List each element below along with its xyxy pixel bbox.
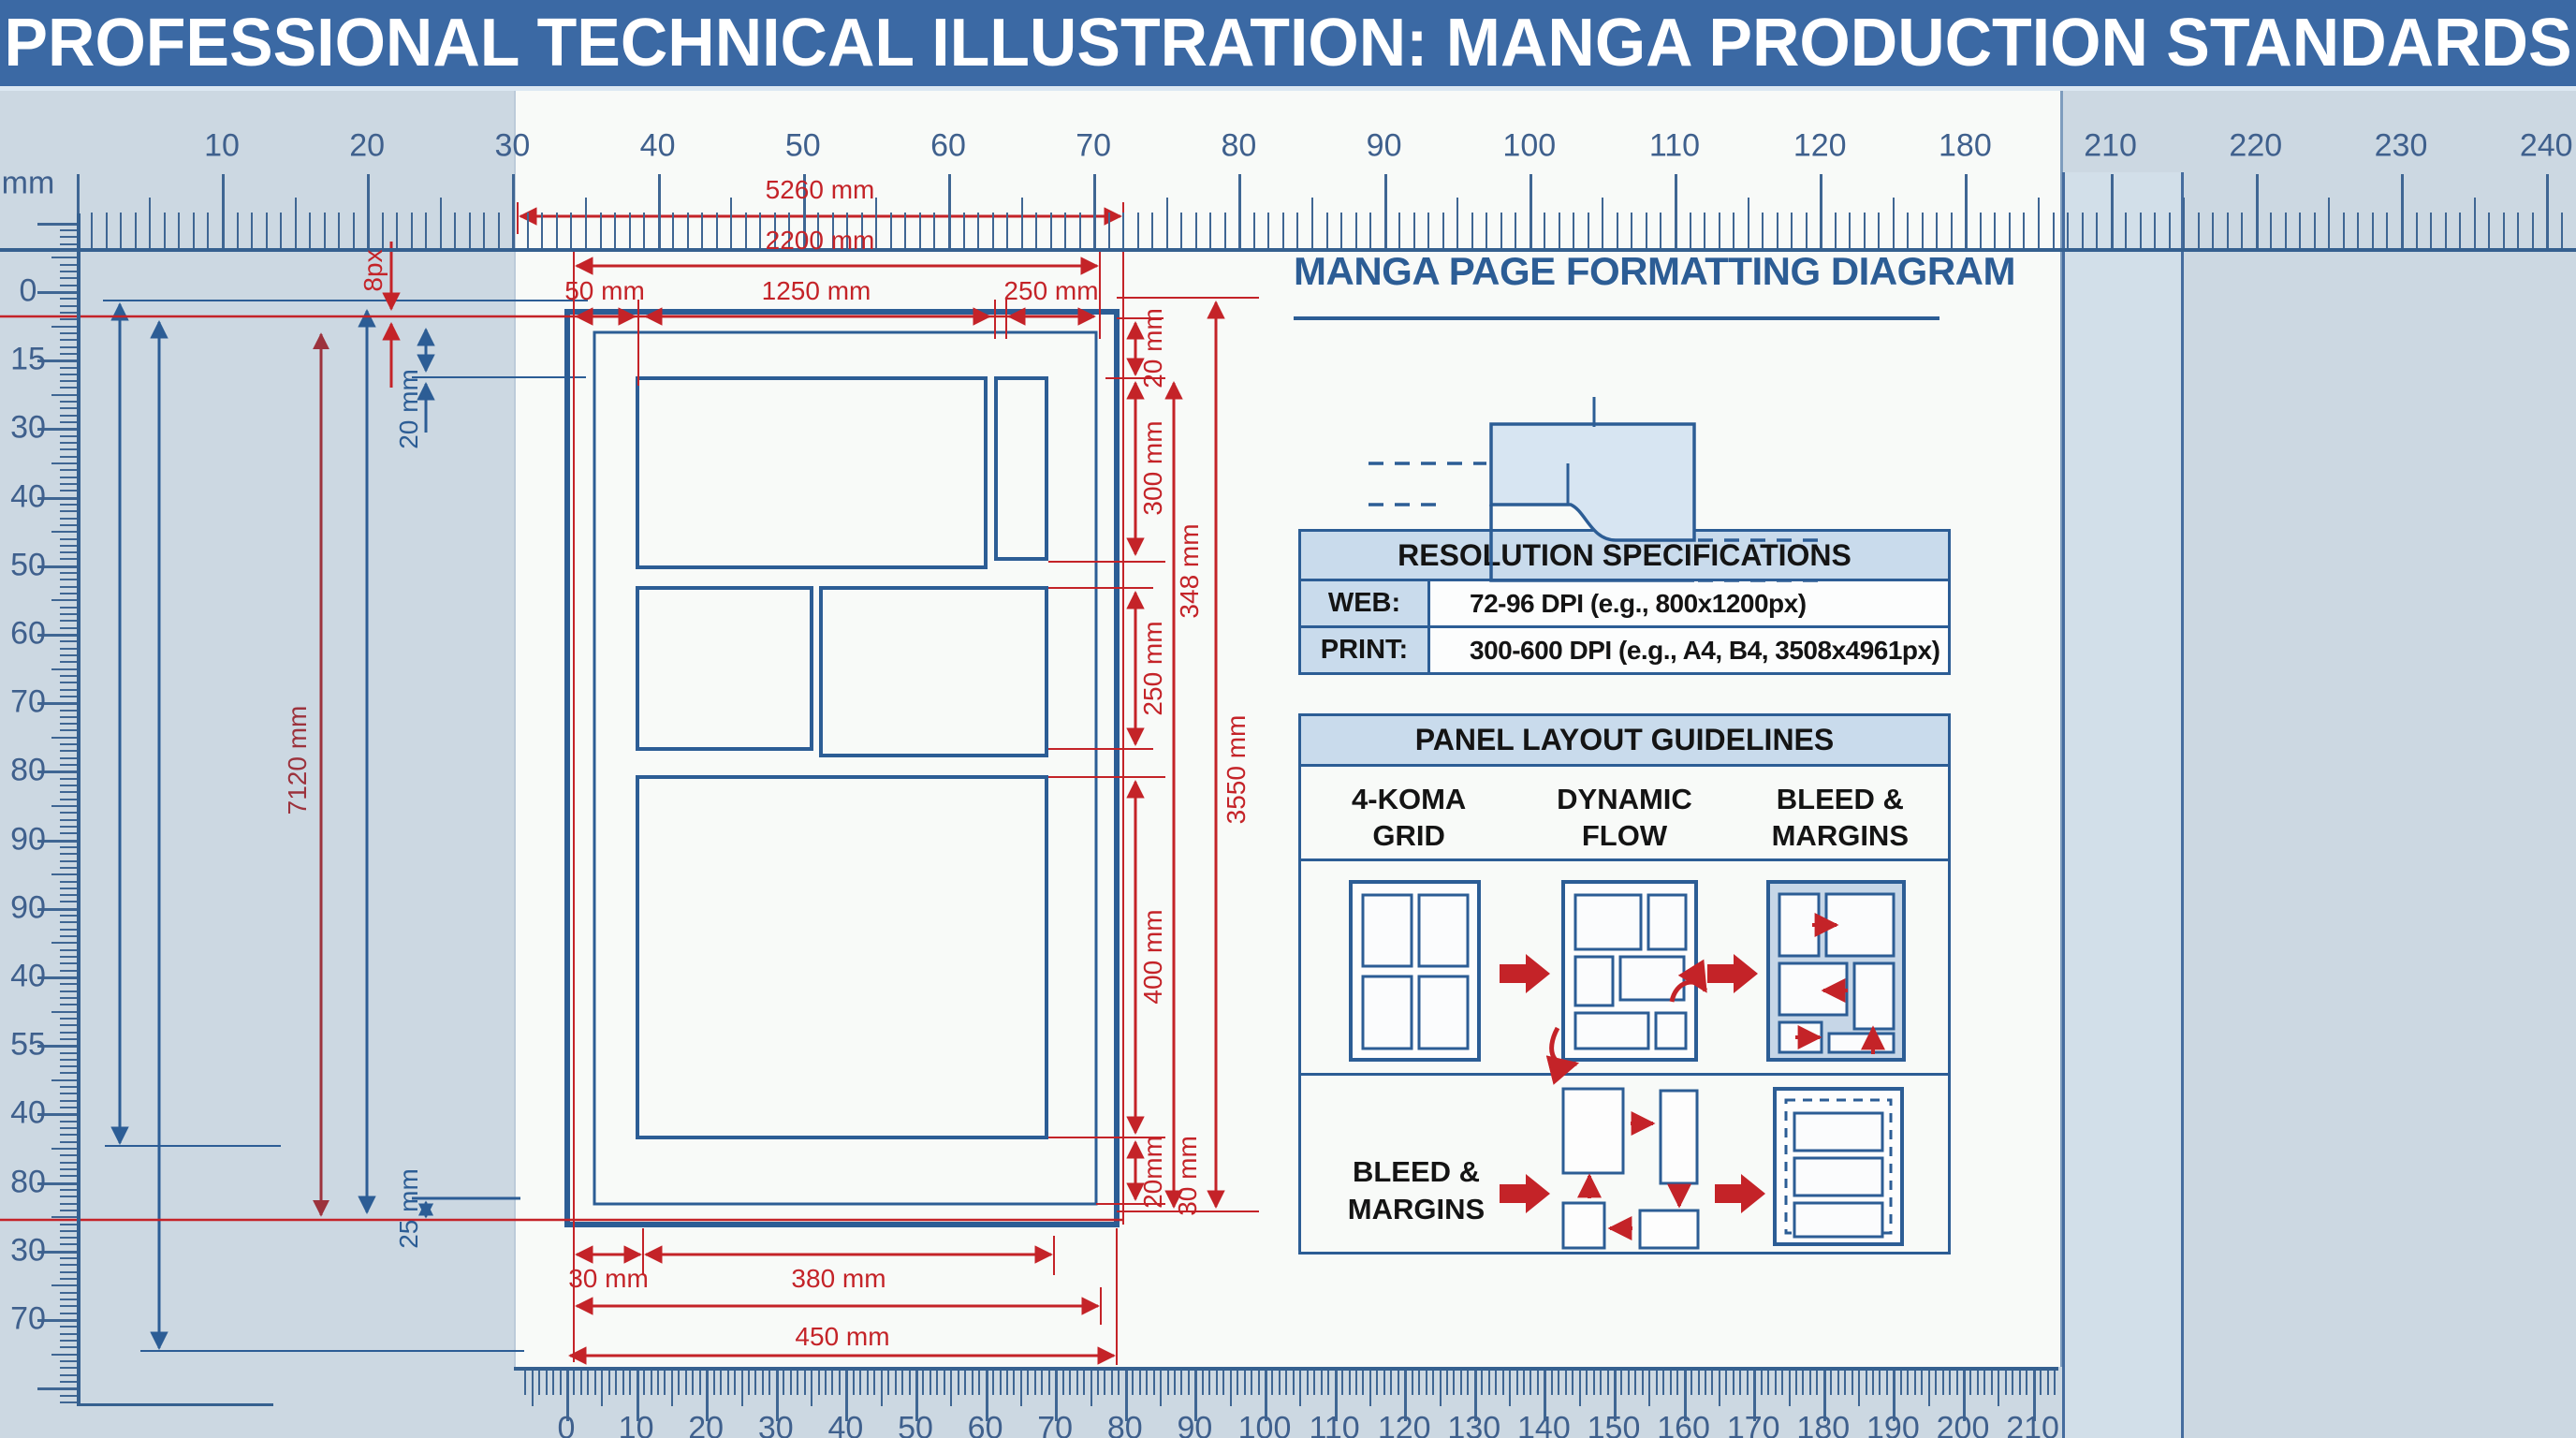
ruler-tick (2357, 213, 2359, 248)
ruler-tick (60, 510, 77, 512)
ruler-tick (60, 785, 77, 786)
ruler-tick (60, 654, 77, 656)
ruler-tick (60, 1100, 77, 1102)
ruler-tick (60, 1326, 77, 1328)
ruler-tick (594, 1371, 596, 1395)
ruler-label: 150 (1588, 1411, 1641, 1438)
ruler-tick (60, 277, 77, 279)
ruler-tick (60, 1065, 77, 1067)
ruler-tick (91, 213, 93, 248)
ruler-tick (60, 832, 77, 834)
ruler-tick (622, 1371, 624, 1395)
ruler-tick (60, 1340, 77, 1342)
ruler-tick (2372, 213, 2374, 248)
ruler-tick (51, 1216, 77, 1218)
ruler-tick (1795, 1371, 1797, 1395)
ruler-tick (1216, 1371, 1218, 1395)
table-row: WEB: 72-96 DPI (e.g., 800x1200px) (1301, 581, 1948, 625)
ruler-tick (60, 997, 77, 999)
ruler-tick (51, 599, 77, 601)
ruler-tick (51, 1284, 77, 1286)
technical-illustration-page: MANGA PAGE FORMATTING DIAGRAM RESOLUTION… (0, 0, 2576, 1438)
ruler-label: 240 (2520, 128, 2573, 165)
bottom-ruler-baseline (514, 1367, 2058, 1371)
ruler-tick (2241, 213, 2243, 248)
ruler-tick (1293, 1371, 1295, 1395)
ruler-tick (1998, 1371, 1999, 1406)
ruler-tick (804, 1371, 806, 1395)
ruler-tick (1258, 1371, 1260, 1395)
ruler-tick (1851, 1371, 1853, 1395)
ruler-tick (60, 1189, 77, 1191)
ruler-tick (1983, 1371, 1985, 1395)
ruler-tick (60, 894, 77, 896)
ruler-tick (853, 1371, 855, 1395)
ruler-tick (887, 1371, 889, 1395)
ruler-tick (1055, 1371, 1058, 1421)
ruler-tick (60, 1032, 77, 1034)
ruler-tick (37, 291, 77, 294)
ruler-label: 80 (1107, 1411, 1143, 1438)
ruler-tick (60, 1203, 77, 1205)
ruler-tick (1230, 1371, 1232, 1406)
guideline-illustration-row (1301, 861, 1948, 1076)
ruler-tick (1426, 1371, 1427, 1395)
ruler-tick (909, 1371, 911, 1395)
ruler-tick (1160, 1371, 1162, 1406)
ruler-tick (1076, 1371, 1078, 1395)
resolution-row-label: WEB: (1301, 581, 1430, 625)
ruler-tick (2047, 1371, 2049, 1395)
ruler-tick (2054, 1371, 2056, 1395)
ruler-tick (1000, 1371, 1002, 1395)
column-label: BLEED & MARGINS (1757, 782, 1924, 858)
ruler-tick (2430, 213, 2432, 248)
ruler-tick (60, 921, 77, 923)
ruler-tick (60, 593, 77, 594)
ruler-tick (573, 1371, 575, 1395)
ruler-tick (120, 213, 122, 248)
ruler-tick (2012, 1371, 2013, 1395)
dimension-label-overall-width: 5260 mm (766, 175, 875, 205)
ruler-tick (51, 462, 77, 464)
column-4koma: 4-KOMA GRID (1301, 767, 1516, 858)
ruler-tick (692, 1371, 694, 1395)
ruler-unit-label: mm (2, 166, 55, 202)
ruler-tick (1013, 1371, 1015, 1395)
ruler-tick (1656, 1371, 1658, 1395)
ruler-tick (1313, 1371, 1315, 1395)
column-bleed-margins: BLEED & MARGINS (1733, 767, 1948, 858)
ruler-tick (2517, 213, 2519, 248)
ruler-tick (2314, 213, 2316, 248)
ruler-tick (768, 1371, 770, 1395)
ruler-tick (60, 764, 77, 766)
dimension-label-top-margin: 20 mm (394, 369, 424, 449)
ruler-tick (60, 799, 77, 800)
ruler-tick (2299, 213, 2301, 248)
ruler-tick (266, 213, 268, 248)
ruler-tick (1802, 1371, 1804, 1395)
ruler-tick (901, 1371, 903, 1395)
ruler-tick (1775, 1371, 1777, 1395)
ruler-tick (1132, 1371, 1134, 1395)
ruler-tick (60, 1257, 77, 1259)
ruler-tick (1586, 1371, 1588, 1395)
ruler-tick (60, 607, 77, 609)
ruler-tick (1886, 1371, 1888, 1395)
ruler-tick (2212, 213, 2214, 248)
ruler-tick (37, 1319, 77, 1322)
ruler-tick (825, 1371, 827, 1395)
ruler-tick (338, 213, 340, 248)
ruler-tick (60, 524, 77, 526)
ruler-tick (1872, 1371, 1874, 1395)
ruler-tick (1460, 1371, 1462, 1395)
ruler-label: 230 (2375, 128, 2428, 165)
ruler-tick (762, 1371, 764, 1395)
ruler-tick (1265, 1371, 1267, 1421)
ruler-tick (1432, 1371, 1434, 1395)
ruler-tick (60, 1154, 77, 1156)
ruler-tick (60, 312, 77, 314)
page-title: PROFESSIONAL TECHNICAL ILLUSTRATION: MAN… (4, 5, 2571, 81)
ruler-tick (51, 1148, 77, 1150)
ruler-tick (37, 1387, 77, 1390)
ruler-tick (60, 407, 77, 409)
ruler-tick (1969, 1371, 1971, 1395)
ruler-tick (1935, 1371, 1937, 1395)
ruler-label: 90 (10, 821, 46, 858)
ruler-tick (60, 469, 77, 471)
guideline-columns: 4-KOMA GRID DYNAMIC FLOW BLEED & MARGINS (1301, 767, 1948, 861)
ruler-tick (60, 586, 77, 588)
ruler-tick (60, 1038, 77, 1040)
ruler-tick (1711, 1371, 1713, 1395)
ruler-tick (60, 970, 77, 972)
ruler-tick (60, 757, 77, 759)
ruler-tick (60, 675, 77, 677)
ruler-label: 40 (827, 1411, 863, 1438)
resolution-row-value: 72-96 DPI (e.g., 800x1200px) (1430, 581, 1948, 625)
ruler-tick (1222, 1371, 1224, 1395)
ruler-label: 0 (20, 273, 37, 310)
column-label: 4-KOMA GRID (1325, 782, 1492, 858)
ruler-tick (1390, 1371, 1392, 1395)
ruler-tick (1335, 1371, 1338, 1421)
dimension-label-page-height: 7120 mm (283, 706, 313, 815)
ruler-tick (1167, 1371, 1169, 1395)
ruler-tick (1642, 1371, 1644, 1395)
ruler-tick (859, 1371, 861, 1395)
ruler-label: 40 (10, 1095, 46, 1132)
ruler-tick (2561, 213, 2563, 248)
ruler-tick (1628, 1371, 1630, 1395)
ruler-label: 10 (204, 128, 240, 165)
ruler-tick (483, 213, 485, 248)
ruler-label: 55 (10, 1027, 46, 1064)
ruler-tick (411, 213, 413, 248)
ruler-tick (713, 1371, 715, 1395)
ruler-tick (60, 318, 77, 320)
ruler-label: 20 (688, 1411, 724, 1438)
ruler-tick (546, 1371, 548, 1395)
ruler-tick (60, 826, 77, 828)
ruler-tick (382, 213, 384, 248)
ruler-tick (60, 401, 77, 403)
ruler-tick (60, 367, 77, 369)
ruler-tick (1767, 1371, 1769, 1395)
ruler-tick (353, 213, 355, 248)
ruler-tick (60, 627, 77, 629)
ruler-tick (60, 956, 77, 958)
ruler-tick (60, 1237, 77, 1239)
ruler-tick (60, 298, 77, 300)
ruler-tick (51, 873, 77, 875)
ruler-tick (1481, 1371, 1483, 1395)
ruler-tick (720, 1371, 722, 1395)
ruler-tick (60, 881, 77, 883)
ruler-tick (1048, 1371, 1050, 1395)
ruler-tick (2474, 198, 2476, 248)
ruler-tick (1208, 1371, 1210, 1395)
ruler-label: 20 (349, 128, 385, 165)
ruler-tick (560, 1371, 562, 1395)
resolution-table-header: RESOLUTION SPECIFICATIONS (1301, 532, 1948, 581)
ruler-tick (1495, 1371, 1497, 1395)
ruler-tick (1090, 1371, 1092, 1406)
ruler-tick (2040, 1371, 2042, 1395)
ruler-tick (1761, 1371, 1763, 1395)
column-dynamic-flow: DYNAMIC FLOW (1516, 767, 1732, 858)
ruler-tick (51, 668, 77, 670)
ruler-tick (469, 213, 471, 248)
ruler-tick (60, 1134, 77, 1136)
ruler-tick (60, 1313, 77, 1314)
ruler-label: 10 (619, 1411, 654, 1438)
ruler-tick (60, 1168, 77, 1170)
ruler-tick (1398, 1371, 1399, 1395)
ruler-tick (643, 1371, 645, 1395)
ruler-tick (1251, 1371, 1252, 1395)
ruler-tick (60, 558, 77, 560)
ruler-tick (1355, 1371, 1357, 1395)
ruler-tick (37, 770, 77, 773)
ruler-label: 50 (898, 1411, 933, 1438)
ruler-tick (60, 435, 77, 437)
ruler-tick (1440, 1371, 1442, 1406)
ruler-tick (1739, 1371, 1741, 1395)
ruler-tick (149, 198, 151, 248)
ruler-tick (60, 1401, 77, 1403)
ruler-tick (845, 1371, 848, 1421)
ruler-tick (1600, 1371, 1602, 1395)
ruler-tick (51, 531, 77, 533)
ruler-label: 210 (2006, 1411, 2059, 1438)
ruler-tick (929, 1371, 931, 1395)
ruler-tick (958, 1371, 959, 1395)
ruler-tick (51, 805, 77, 807)
ruler-tick (651, 1371, 652, 1395)
ruler-tick (1747, 1371, 1749, 1395)
dimension-label-panel2-height: 250 mm (1138, 621, 1168, 715)
ruler-tick (60, 1175, 77, 1177)
ruler-tick (60, 915, 77, 917)
dimension-label-bleed-px: 8px (359, 249, 388, 291)
column-label: DYNAMIC FLOW (1541, 782, 1707, 858)
ruler-label: 70 (1037, 1411, 1073, 1438)
ruler-tick (748, 1371, 750, 1395)
ruler-tick (1648, 1371, 1650, 1406)
ruler-tick (135, 213, 137, 248)
ruler-tick (1733, 1371, 1734, 1395)
ruler-tick (60, 490, 77, 492)
ruler-tick (193, 213, 195, 248)
ruler-tick (1523, 1371, 1525, 1395)
ruler-tick (1244, 1371, 1246, 1395)
ruler-tick (60, 421, 77, 423)
ruler-tick (1921, 1371, 1923, 1395)
ruler-tick (37, 1045, 77, 1048)
dimension-label-outer-margin: 30 mm (1173, 1136, 1203, 1216)
ruler-tick (1307, 1371, 1309, 1395)
ruler-tick (60, 456, 77, 458)
ruler-tick (706, 1371, 709, 1421)
ruler-tick (754, 1371, 756, 1395)
ruler-tick (1062, 1371, 1064, 1395)
ruler-tick (1949, 1371, 1951, 1395)
ruler-tick (1844, 1371, 1846, 1395)
ruler-tick (797, 1371, 798, 1395)
dimension-label-trim-width: 2200 mm (766, 226, 875, 256)
ruler-tick (60, 1086, 77, 1088)
ruler-tick (1991, 1371, 1993, 1395)
ruler-tick (2256, 174, 2259, 248)
ruler-tick (60, 1395, 77, 1397)
ruler-label: 100 (1238, 1411, 1292, 1438)
ruler-tick (1928, 1371, 1930, 1406)
ruler-tick (60, 791, 77, 793)
ruler-tick (60, 1093, 77, 1094)
ruler-tick (734, 1371, 736, 1395)
ruler-tick (60, 1072, 77, 1074)
ruler-tick (60, 1107, 77, 1108)
ruler-tick (1858, 1371, 1860, 1406)
ruler-tick (51, 942, 77, 944)
ruler-tick (60, 640, 77, 642)
ruler-tick (2386, 213, 2388, 248)
ruler-tick (664, 1371, 666, 1395)
ruler-tick (60, 271, 77, 272)
ruler-tick (1188, 1371, 1190, 1395)
ruler-tick (1593, 1371, 1595, 1395)
ruler-tick (60, 353, 77, 355)
ruler-tick (964, 1371, 966, 1395)
ruler-tick (1684, 1371, 1687, 1421)
ruler-tick (60, 374, 77, 375)
ruler-tick (60, 716, 77, 718)
ruler-tick (1299, 1371, 1301, 1406)
ruler-tick (60, 1004, 77, 1005)
ruler-tick (60, 1367, 77, 1369)
ruler-tick (454, 213, 456, 248)
ruler-tick (881, 1371, 883, 1406)
ruler-tick (60, 1162, 77, 1164)
ruler-tick (440, 198, 442, 248)
ruler-tick (1404, 1371, 1407, 1421)
ruler-tick (580, 1371, 582, 1395)
ruler-tick (1907, 1371, 1909, 1395)
ruler-tick (671, 1371, 673, 1406)
ruler-tick (657, 1371, 659, 1395)
ruler-tick (1453, 1371, 1455, 1395)
ruler-tick (1509, 1371, 1511, 1406)
ruler-tick (37, 1113, 77, 1116)
ruler-tick (60, 1271, 77, 1273)
ruler-tick (60, 696, 77, 697)
ruler-tick (60, 442, 77, 444)
ruler-tick (2005, 1371, 2007, 1395)
left-ruler-baseline (77, 213, 80, 1406)
ruler-tick (60, 983, 77, 985)
ruler-tick (37, 976, 77, 979)
ruler-label: 40 (10, 959, 46, 995)
ruler-tick (637, 1371, 639, 1421)
ruler-tick (60, 483, 77, 485)
ruler-tick (324, 213, 326, 248)
dimension-label-panel3-height: 400 mm (1138, 909, 1168, 1004)
dimension-label-right-top-gap: 20 mm (1138, 308, 1168, 389)
ruler-tick (1153, 1371, 1155, 1395)
ruler-tick (1125, 1371, 1128, 1421)
ruler-tick (37, 1182, 77, 1185)
ruler-tick (60, 1374, 77, 1376)
ruler-tick (1558, 1371, 1559, 1395)
ruler-tick (60, 1024, 77, 1026)
ruler-tick (1020, 1371, 1022, 1406)
ruler-tick (1412, 1371, 1413, 1395)
ruler-tick (1614, 1371, 1617, 1421)
ruler-tick (1662, 1371, 1664, 1395)
dimension-label-right-bottom-gap: 20mm (1138, 1136, 1168, 1209)
ruler-tick (60, 729, 77, 731)
ruler-tick (1837, 1371, 1839, 1395)
ruler-tick (1488, 1371, 1490, 1395)
ruler-tick (2033, 1371, 2036, 1421)
ruler-tick (2503, 213, 2505, 248)
ruler-tick (2343, 213, 2345, 248)
ruler-tick (1111, 1371, 1113, 1395)
ruler-tick (164, 213, 166, 248)
ruler-tick (566, 1371, 569, 1421)
ruler-tick (51, 737, 77, 739)
ruler-tick (37, 702, 77, 705)
ruler-tick (237, 213, 239, 248)
ruler-tick (1174, 1371, 1176, 1395)
ruler-tick (60, 504, 77, 506)
ruler-label: 60 (968, 1411, 1003, 1438)
ruler-tick (972, 1371, 973, 1395)
ruler-tick (2198, 213, 2200, 248)
ruler-tick (1383, 1371, 1385, 1395)
panel-guidelines-header: PANEL LAYOUT GUIDELINES (1301, 716, 1948, 767)
ruler-label: 190 (1866, 1411, 1920, 1438)
ruler-tick (1942, 1371, 1944, 1395)
ruler-tick (37, 840, 77, 843)
ruler-tick (396, 213, 398, 248)
ruler-tick (60, 661, 77, 663)
ruler-tick (280, 213, 282, 248)
